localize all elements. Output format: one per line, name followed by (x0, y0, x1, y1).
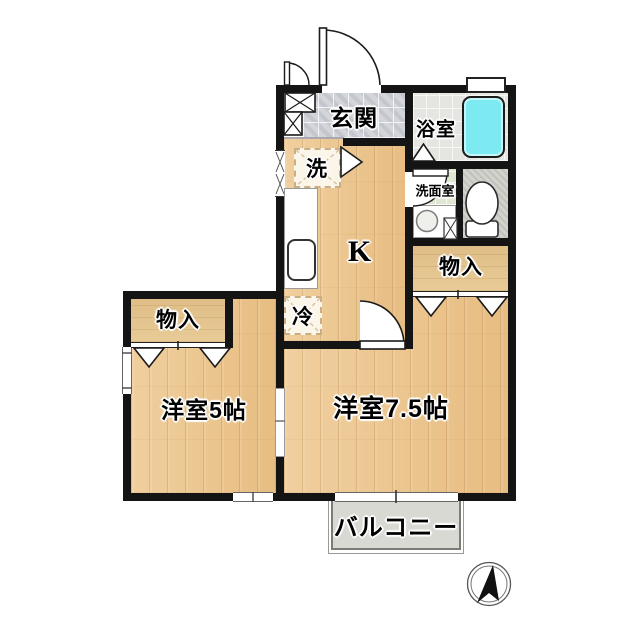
toilet-bowl (466, 182, 498, 224)
entrance-label: 玄関 (330, 99, 378, 133)
floorplan-canvas: 玄関 浴室 洗面室 洗 K 冷 物入 物入 洋室5帖 洋室7.5帖 バルコニー (0, 0, 640, 640)
washroom-label: 洗面室 (415, 181, 454, 200)
washer-door-triangle (341, 147, 362, 177)
bath-door-triangle (412, 144, 435, 161)
compass-north-icon (468, 563, 511, 606)
closet-right-label: 物入 (439, 251, 483, 281)
closet-left-label: 物入 (156, 304, 200, 334)
bathroom-label: 浴室 (416, 115, 456, 142)
closet-left-door-triangle (200, 348, 230, 367)
closet-right-door-triangle (416, 297, 446, 316)
washer-label: 洗 (306, 153, 328, 183)
room75-label: 洋室7.5帖 (333, 389, 449, 425)
kitchen-room-door-leaf (360, 341, 405, 349)
closet-left-door-triangle (134, 348, 164, 367)
entrance-door-leaf (320, 28, 327, 85)
kitchen-label: K (348, 235, 372, 269)
washbasin-sink (417, 211, 438, 232)
balcony-label: バルコニー (334, 508, 459, 543)
closet-right-door-triangle (477, 297, 507, 316)
washroom-door-leaf (413, 169, 448, 176)
room5-label: 洋室5帖 (161, 391, 247, 425)
fridge-label: 冷 (292, 301, 314, 331)
symbols-overlay (0, 0, 640, 640)
meterbox-door-leaf (285, 62, 290, 85)
